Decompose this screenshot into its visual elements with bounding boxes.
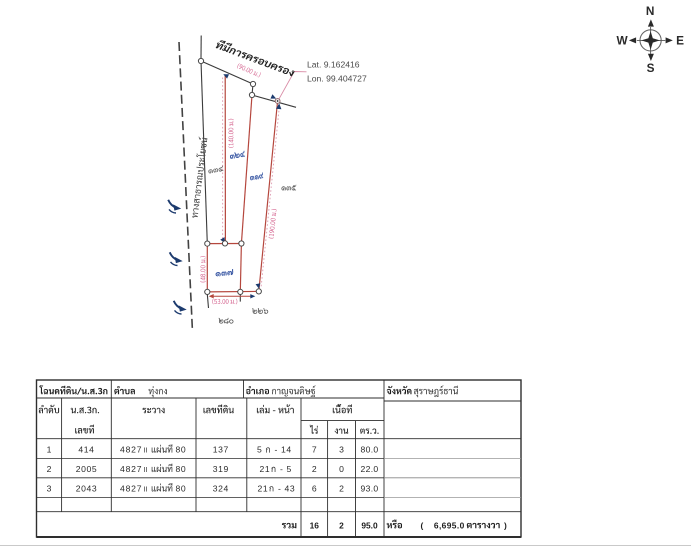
svg-text:2: 2 [47, 464, 52, 474]
svg-text:80.0: 80.0 [361, 445, 379, 455]
svg-text:21: 21 [258, 483, 269, 493]
svg-text:80: 80 [176, 464, 187, 474]
svg-text:2043: 2043 [76, 483, 98, 493]
svg-text:0: 0 [339, 464, 344, 474]
svg-text:- 5: - 5 [280, 464, 292, 474]
svg-text:6,695.0: 6,695.0 [434, 520, 465, 530]
svg-text:2005: 2005 [76, 464, 98, 474]
svg-text:22.0: 22.0 [361, 464, 379, 474]
svg-text:(: ( [421, 520, 424, 530]
svg-text:N: N [646, 4, 655, 18]
svg-text:2: 2 [312, 464, 317, 474]
svg-text:- 43: - 43 [278, 483, 295, 493]
svg-text:Lat. 9.162416: Lat. 9.162416 [307, 60, 360, 70]
svg-text:II: II [144, 448, 148, 455]
svg-text:93.0: 93.0 [361, 483, 379, 493]
svg-text:7: 7 [312, 445, 317, 455]
svg-text:II: II [144, 486, 148, 493]
svg-text:S: S [647, 61, 655, 75]
svg-text:W: W [617, 33, 629, 47]
svg-text:80: 80 [176, 445, 187, 455]
svg-text:95.0: 95.0 [361, 520, 378, 530]
svg-text:324: 324 [213, 483, 229, 493]
svg-text:4827: 4827 [120, 483, 142, 493]
svg-text:E: E [676, 33, 684, 47]
svg-text:2: 2 [339, 520, 344, 530]
svg-text:414: 414 [78, 445, 94, 455]
svg-text:6: 6 [312, 483, 317, 493]
svg-text:21: 21 [260, 464, 271, 474]
svg-text:3: 3 [339, 445, 344, 455]
svg-text:80: 80 [176, 483, 187, 493]
svg-text:Lon. 99.404727: Lon. 99.404727 [307, 74, 367, 84]
svg-text:- 14: - 14 [275, 445, 292, 455]
svg-text:137: 137 [213, 445, 229, 455]
svg-text:II: II [144, 467, 148, 474]
svg-text:): ) [504, 520, 507, 530]
svg-text:3: 3 [47, 483, 52, 493]
svg-text:4827: 4827 [120, 445, 142, 455]
svg-text:2: 2 [339, 483, 344, 493]
svg-text:319: 319 [213, 464, 229, 474]
svg-text:4827: 4827 [120, 464, 142, 474]
svg-text:16: 16 [310, 520, 320, 530]
svg-text:1: 1 [47, 445, 52, 455]
svg-text:5: 5 [257, 445, 262, 455]
